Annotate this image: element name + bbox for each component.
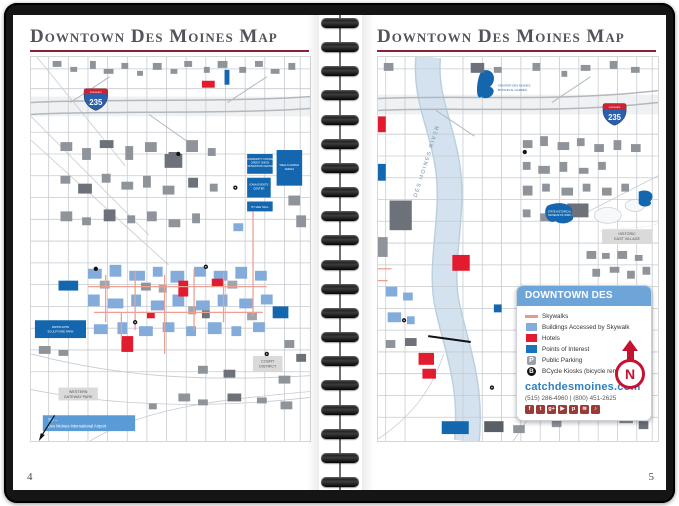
svg-text:EAST VILLAGE: EAST VILLAGE xyxy=(614,237,640,241)
hotel-swatch xyxy=(525,334,538,342)
svg-text:WELLS FARGO: WELLS FARGO xyxy=(280,163,300,167)
sculpture-park: PAPPAJOHN SCULPTURE PARK xyxy=(35,320,86,338)
spiral-coil xyxy=(321,429,359,439)
downtown-west-map: COMMUNITY CHOICE CREDIT UNION CONVENTION… xyxy=(31,57,310,441)
pinterest-icon[interactable]: p xyxy=(569,405,578,414)
spiral-coil xyxy=(321,260,359,270)
youtube-icon[interactable]: ▶ xyxy=(558,405,567,414)
title-rule-left xyxy=(30,50,309,52)
svg-text:GREATER DES MOINES: GREATER DES MOINES xyxy=(498,84,531,88)
svg-text:HY-VEE HALL: HY-VEE HALL xyxy=(251,205,269,209)
legend-item-skywalks: Skywalks xyxy=(525,311,645,322)
western-gateway-label: WESTERN GATEWAY PARK xyxy=(59,387,98,400)
svg-text:INTERSTATE: INTERSTATE xyxy=(90,91,103,94)
skywalk-lines xyxy=(378,269,392,281)
svg-text:WESTERN: WESTERN xyxy=(69,390,88,394)
i235-shield-right: INTERSTATE 235 xyxy=(603,103,626,125)
svg-text:CREDIT UNION: CREDIT UNION xyxy=(251,160,269,164)
north-letter: N xyxy=(615,359,645,389)
spiral-coil xyxy=(321,163,359,173)
spiral-coil xyxy=(321,235,359,245)
poi-swatch xyxy=(525,345,538,353)
svg-text:PAPPAJOHN: PAPPAJOHN xyxy=(52,325,69,329)
north-arrow: N xyxy=(615,340,645,389)
page-number-right: 5 xyxy=(649,471,655,483)
skywalk-building-swatch xyxy=(525,323,538,331)
spiral-coil xyxy=(321,66,359,76)
page-title-right: Downtown Des Moines Map xyxy=(377,27,656,48)
airport-note: TO – Des Moines International Airport xyxy=(39,415,135,441)
svg-text:HISTORIC: HISTORIC xyxy=(618,232,636,236)
spiral-coil xyxy=(321,115,359,125)
svg-text:Des Moines International Airpo: Des Moines International Airport xyxy=(48,424,107,429)
svg-text:SCULPTURE PARK: SCULPTURE PARK xyxy=(47,330,73,334)
capitol-grounds xyxy=(594,190,658,231)
botanical-garden: GREATER DES MOINES BOTANICAL GARDEN xyxy=(477,70,530,98)
svg-text:DISTRICT: DISTRICT xyxy=(259,364,277,368)
twitter-icon[interactable]: t xyxy=(536,405,545,414)
map-legend: DOWNTOWN DES MOINES Skywalks Buildings A… xyxy=(516,285,652,421)
spiral-coil xyxy=(321,308,359,318)
map-left: COMMUNITY CHOICE CREDIT UNION CONVENTION… xyxy=(30,56,311,442)
spiral-coil xyxy=(321,18,359,28)
svg-text:COURT: COURT xyxy=(261,359,275,363)
svg-text:CENTER: CENTER xyxy=(253,186,264,190)
east-village-label: HISTORIC EAST VILLAGE xyxy=(602,229,652,244)
des-moines-river: DES MOINES RIVER xyxy=(413,57,468,441)
songbird-icon[interactable]: ♪ xyxy=(591,405,600,414)
page-right: Downtown Des Moines Map DES MOINES RIVER xyxy=(362,15,666,490)
spiral-coil xyxy=(321,284,359,294)
svg-text:235: 235 xyxy=(89,98,103,107)
spiral-coil xyxy=(321,90,359,100)
svg-text:MUSEUM OF IOWA: MUSEUM OF IOWA xyxy=(548,214,571,217)
svg-text:COMMUNITY CHOICE: COMMUNITY CHOICE xyxy=(247,157,273,161)
spiral-coil xyxy=(321,332,359,342)
page-title-left: Downtown Des Moines Map xyxy=(30,27,309,48)
page-left: Downtown Des Moines Map xyxy=(13,15,319,490)
spiral-coil xyxy=(321,477,359,487)
spiral-coil xyxy=(321,453,359,463)
map-right: DES MOINES RIVER xyxy=(377,56,659,442)
bcycle-icon: B xyxy=(525,367,538,376)
phone-numbers: (515) 286-4960 | (800) 451-2625 xyxy=(525,395,645,402)
skywalk-district xyxy=(59,265,289,352)
spiral-binding xyxy=(317,15,363,490)
social-icons: f t g+ ▶ p ≋ ♪ xyxy=(525,405,645,414)
rss-icon[interactable]: ≋ xyxy=(580,405,589,414)
spiral-coil xyxy=(321,380,359,390)
skywalk-swatch xyxy=(525,315,538,318)
spiral-coil xyxy=(321,211,359,221)
legend-title: DOWNTOWN DES MOINES xyxy=(517,286,651,306)
spiral-coil xyxy=(321,139,359,149)
product-photo: Downtown Des Moines Map xyxy=(0,0,679,506)
spiral-coil xyxy=(321,356,359,366)
svg-text:INTERSTATE: INTERSTATE xyxy=(609,106,621,109)
court-district-label: COURT DISTRICT xyxy=(253,356,282,372)
spiral-coil xyxy=(321,405,359,415)
page-number-left: 4 xyxy=(27,471,33,483)
svg-text:GATEWAY PARK: GATEWAY PARK xyxy=(64,395,93,399)
open-pages: Downtown Des Moines Map xyxy=(13,15,666,490)
svg-text:235: 235 xyxy=(608,113,622,122)
parking-icon: P xyxy=(525,356,538,365)
facebook-icon[interactable]: f xyxy=(525,405,534,414)
svg-text:BOTANICAL GARDEN: BOTANICAL GARDEN xyxy=(498,88,527,92)
spiral-coil xyxy=(321,187,359,197)
historical-museum: STATE HISTORICAL MUSEUM OF IOWA xyxy=(545,203,573,223)
legend-item-skywalk-buildings: Buildings Accessed by Skywalk xyxy=(525,322,645,333)
svg-text:CONVENTION CENTER: CONVENTION CENTER xyxy=(246,164,274,168)
book-cover: Downtown Des Moines Map xyxy=(4,3,675,503)
north-arrow-head xyxy=(622,340,638,351)
svg-text:IOWA EVENTS: IOWA EVENTS xyxy=(250,183,269,187)
google-plus-icon[interactable]: g+ xyxy=(547,405,556,414)
svg-text:ARENA: ARENA xyxy=(285,167,295,171)
spiral-coil xyxy=(321,42,359,52)
title-rule-right xyxy=(377,50,656,52)
